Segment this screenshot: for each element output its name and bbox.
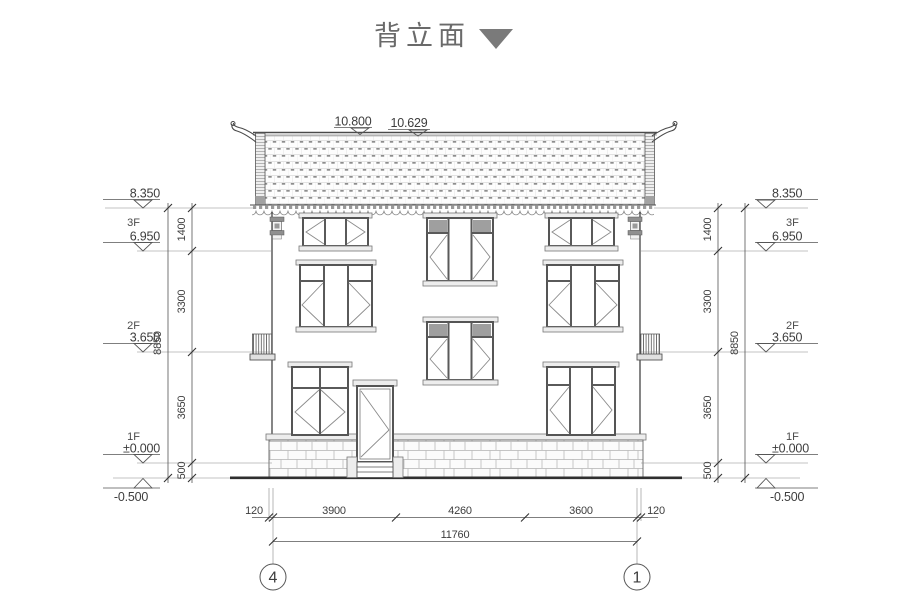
door-rear <box>353 380 397 462</box>
axis-label-1: 1 <box>633 570 642 587</box>
window-1f-left <box>288 362 352 435</box>
drawing-sheet: 背立面 10.800 10.629 <box>0 0 910 616</box>
window-3f-center <box>423 213 497 286</box>
dim-right-3650: 3650 <box>702 396 714 420</box>
dim-right-500: 500 <box>702 462 714 480</box>
elevation-marks-right: 8.350 3F 6.950 2F 3.650 1F ±0.000 -0.500 <box>755 187 818 505</box>
dim-bottom-120-right: 120 <box>647 505 665 517</box>
axis-bubble-4: 4 <box>260 564 286 590</box>
roof-verge-left <box>256 133 266 205</box>
level-right-0000: ±0.000 <box>772 442 809 456</box>
roof <box>231 122 677 217</box>
window-2f-right <box>543 260 623 332</box>
window-3f-left <box>299 213 372 251</box>
dim-bottom-3900: 3900 <box>322 505 346 517</box>
level-left-0000: ±0.000 <box>123 442 160 456</box>
level-left-6950: 6.950 <box>130 230 161 244</box>
balcony-left <box>250 334 275 360</box>
eave-dentil-band <box>252 206 654 211</box>
dim-left-3300: 3300 <box>176 290 188 314</box>
page-title: 背立面 <box>374 21 470 51</box>
dim-left-1400: 1400 <box>176 218 188 242</box>
ridge-elevation-label: 10.800 <box>334 115 371 129</box>
window-3f-right <box>545 213 618 251</box>
window-2f-left <box>296 260 376 332</box>
level-right-6950: 6.950 <box>772 230 803 244</box>
dim-right-1400: 1400 <box>702 218 714 242</box>
title-triangle-icon <box>479 29 513 49</box>
stone-plinth <box>269 440 643 478</box>
dim-right-3300: 3300 <box>702 290 714 314</box>
axis-label-4: 4 <box>269 570 278 587</box>
rear-elevation-drawing: 背立面 10.800 10.629 <box>0 0 910 616</box>
window-2f-center <box>423 317 498 385</box>
level-left-3650: 3.650 <box>130 331 161 345</box>
balcony-right <box>637 334 662 360</box>
dimension-bottom: 120 3900 4260 3600 120 11760 4 1 <box>245 488 665 590</box>
level-left-8350: 8.350 <box>130 187 161 201</box>
roof-tile-field <box>265 136 645 205</box>
eave-elevation-label: 10.629 <box>390 116 427 130</box>
floor-right-3f: 3F <box>786 217 799 229</box>
axis-bubble-1: 1 <box>624 564 650 590</box>
window-1f-right <box>543 362 619 435</box>
title-block: 背立面 <box>374 21 513 51</box>
dim-bottom-3600: 3600 <box>569 505 593 517</box>
dim-bottom-4260: 4260 <box>448 505 472 517</box>
level-right-8350: 8.350 <box>772 187 803 201</box>
dim-left-3650: 3650 <box>176 396 188 420</box>
dim-right-total-8850: 8850 <box>729 331 741 355</box>
dim-bottom-120-left: 120 <box>245 505 263 517</box>
roof-verge-right <box>645 133 655 205</box>
level-right-minus0500: -0.500 <box>770 490 804 504</box>
level-right-3650: 3.650 <box>772 331 803 345</box>
floor-left-3f: 3F <box>127 217 140 229</box>
upturned-eave-left <box>231 122 256 143</box>
level-left-minus0500: -0.500 <box>114 490 148 504</box>
dim-bottom-total-11760: 11760 <box>441 529 470 541</box>
dim-left-500: 500 <box>176 462 188 480</box>
